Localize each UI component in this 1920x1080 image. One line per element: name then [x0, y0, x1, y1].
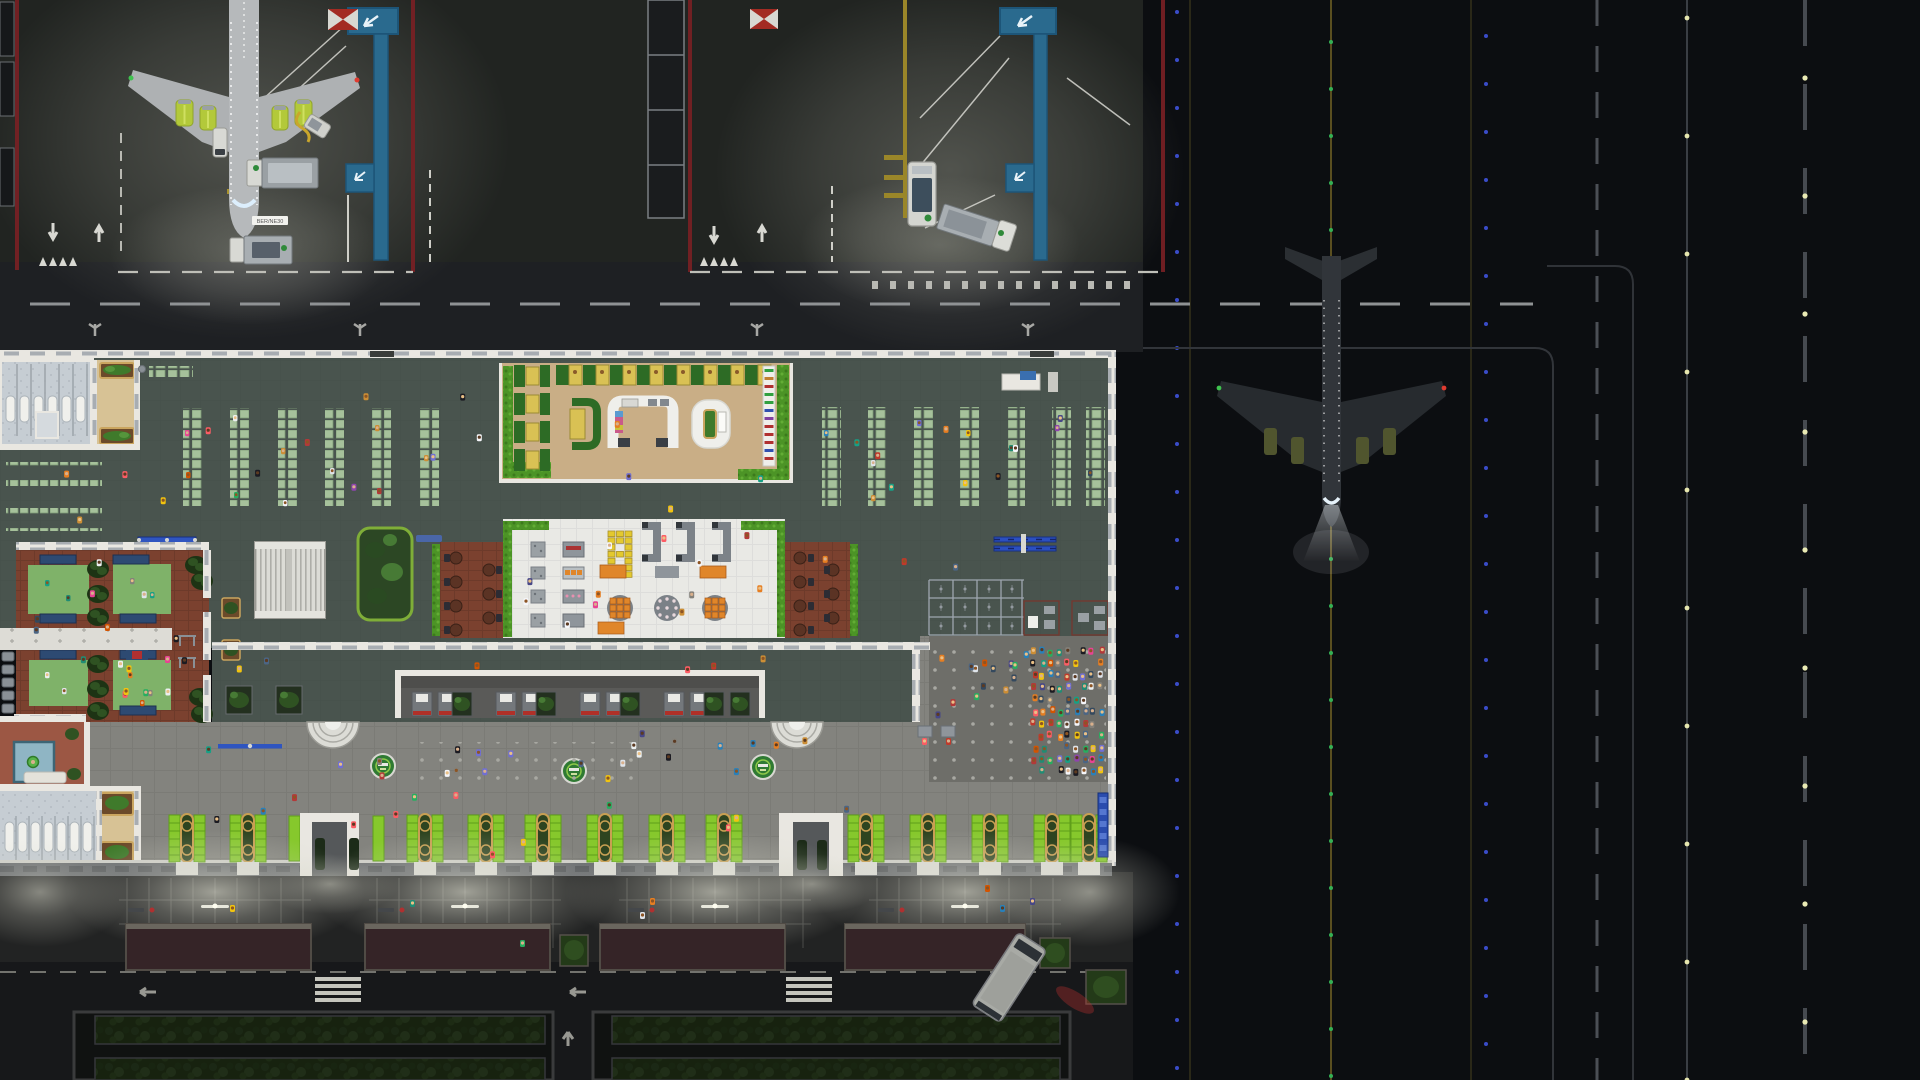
svg-text:BER/NE30: BER/NE30	[257, 219, 284, 225]
